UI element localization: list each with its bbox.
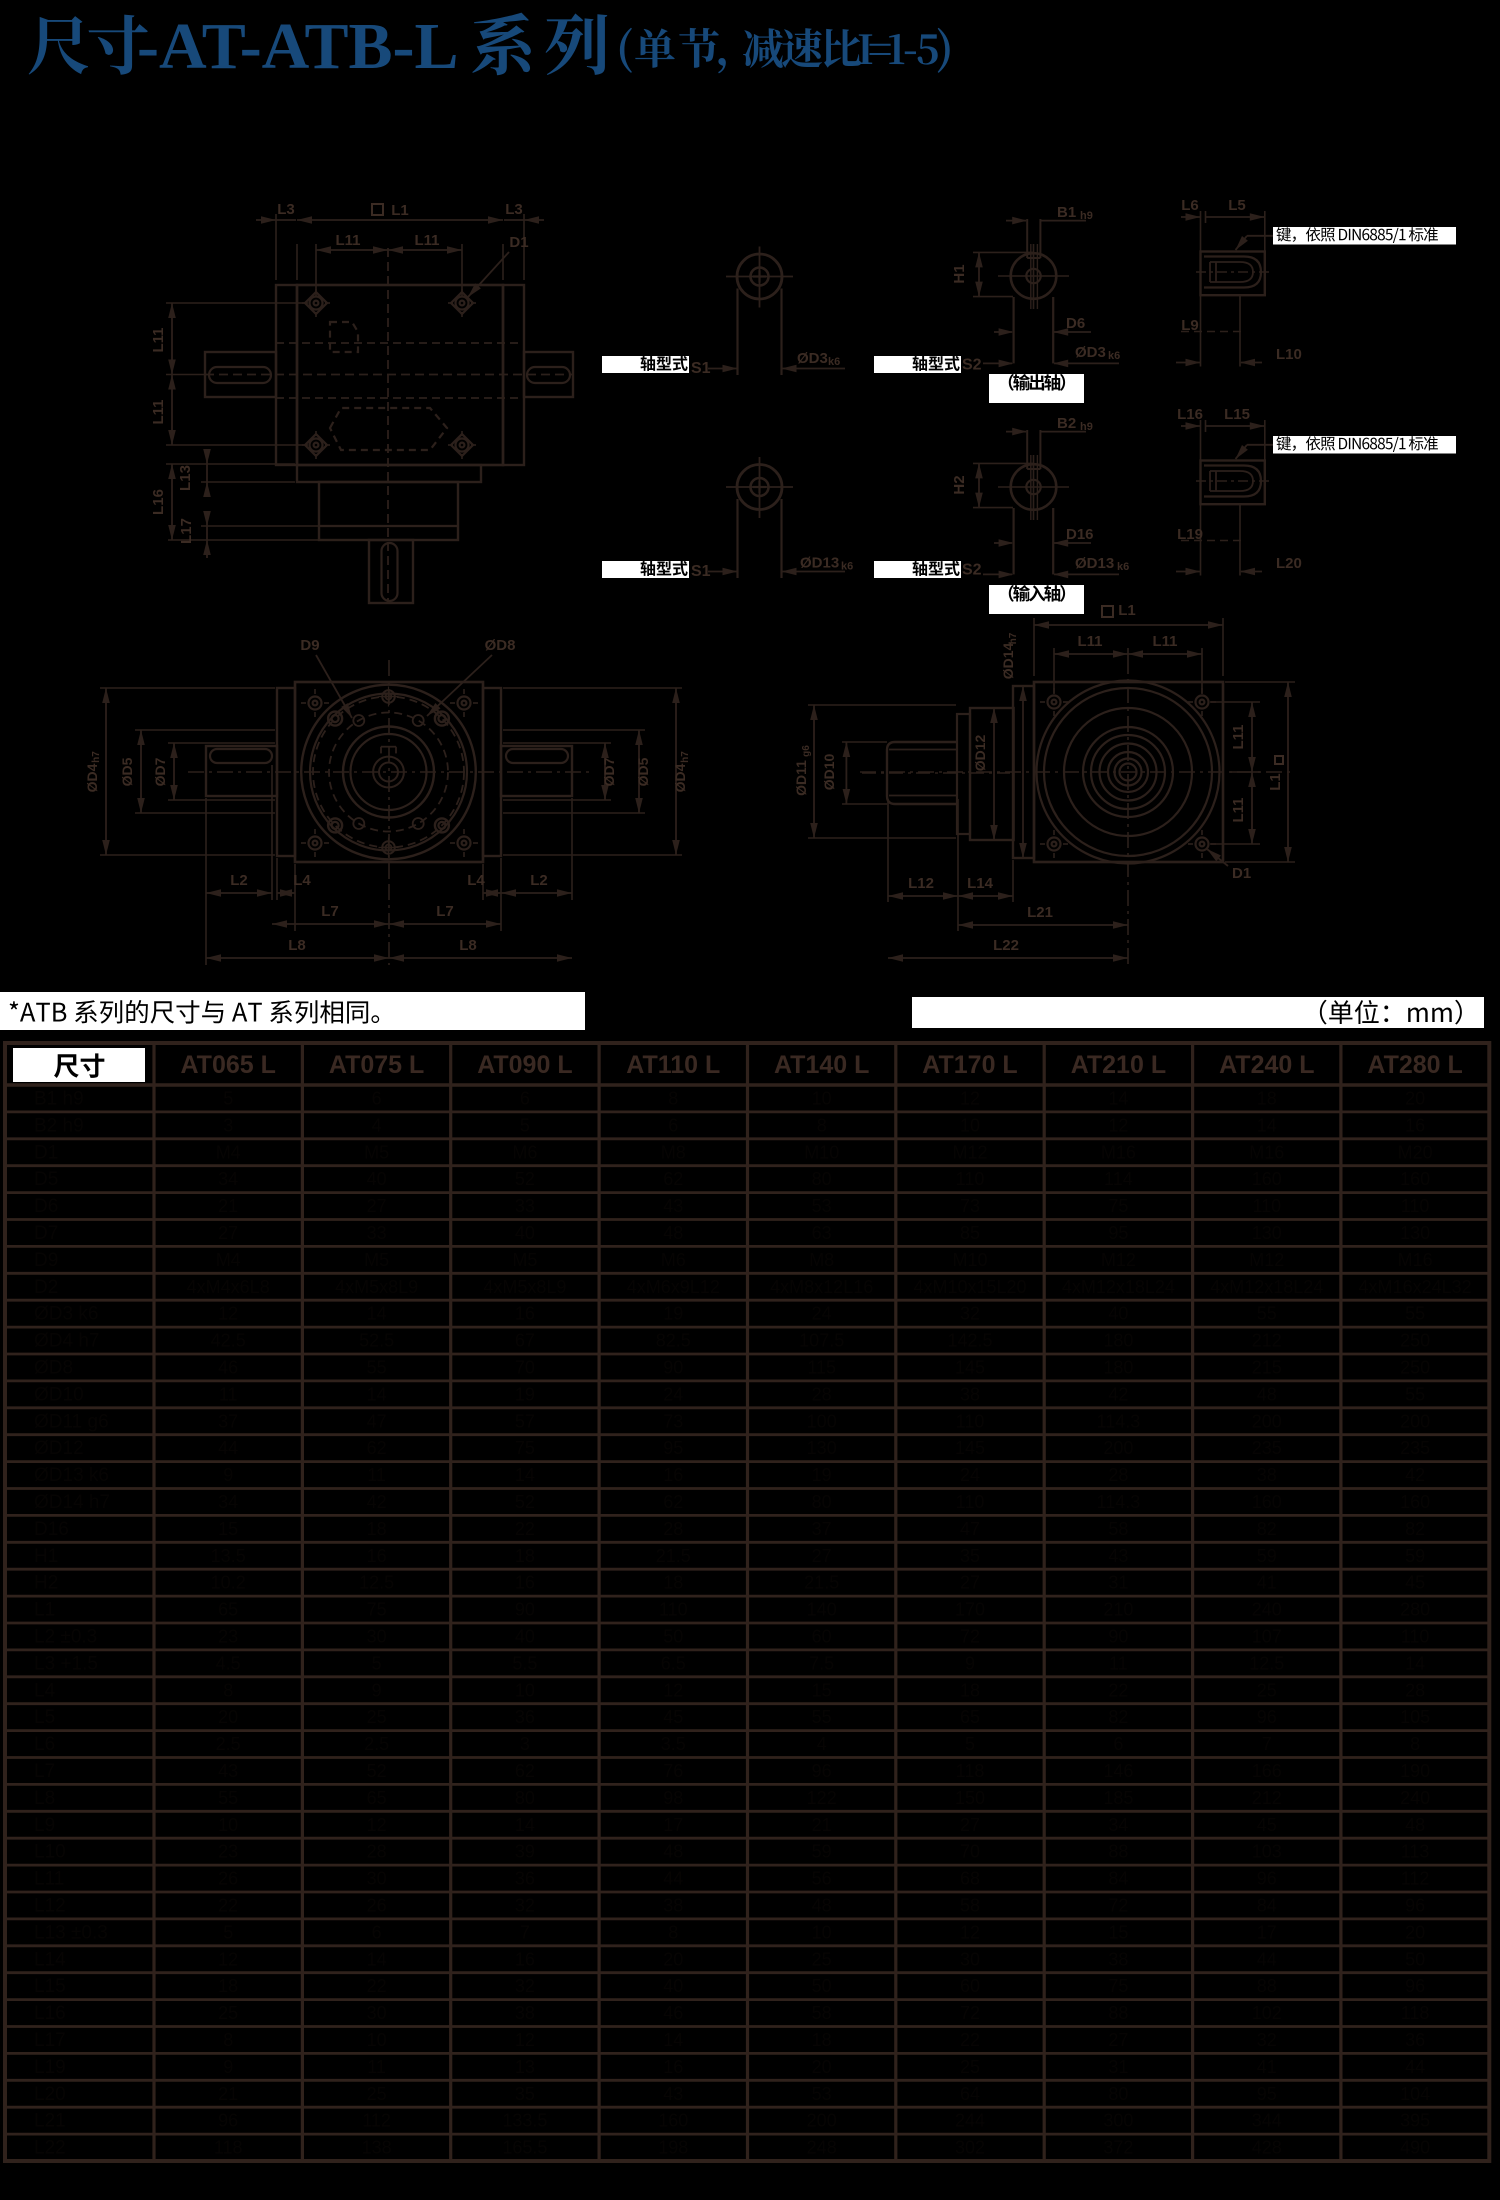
svg-text:38: 38 <box>1257 1465 1277 1485</box>
svg-text:B1: B1 <box>1057 204 1076 221</box>
svg-text:11: 11 <box>367 2057 386 2077</box>
svg-text:17: 17 <box>663 1815 683 1835</box>
svg-text:50: 50 <box>1405 1949 1425 1969</box>
svg-text:L12: L12 <box>908 875 934 892</box>
svg-text:73: 73 <box>663 1411 683 1431</box>
svg-text:L11: L11 <box>1230 797 1247 822</box>
svg-text:12: 12 <box>1108 1115 1128 1135</box>
svg-text:16: 16 <box>515 1949 535 1969</box>
svg-text:75: 75 <box>1108 1196 1128 1216</box>
svg-text:52: 52 <box>367 1761 387 1781</box>
svg-text:S1: S1 <box>691 563 711 580</box>
svg-text:31: 31 <box>1108 2057 1128 2077</box>
svg-text:21: 21 <box>812 1815 832 1835</box>
svg-text:ØD10: ØD10 <box>34 1384 84 1405</box>
svg-text:302: 302 <box>955 2138 985 2158</box>
svg-text:19: 19 <box>663 1304 683 1324</box>
svg-text:52: 52 <box>515 1492 535 1512</box>
svg-text:L9: L9 <box>1181 317 1199 334</box>
svg-text:B2: B2 <box>1057 415 1076 432</box>
svg-text:3: 3 <box>520 1734 530 1754</box>
svg-text:M4: M4 <box>216 1142 241 1162</box>
svg-text:L16: L16 <box>1177 406 1203 423</box>
svg-text:96: 96 <box>812 1761 832 1781</box>
svg-text:160: 160 <box>1400 1492 1430 1512</box>
svg-text:41: 41 <box>1257 2057 1277 2077</box>
svg-text:84: 84 <box>1257 1896 1277 1916</box>
svg-text:6: 6 <box>520 1089 530 1109</box>
svg-text:62: 62 <box>515 1761 535 1781</box>
svg-text:40: 40 <box>515 1627 535 1647</box>
svg-text:42: 42 <box>1108 1384 1128 1404</box>
svg-text:23: 23 <box>218 1842 238 1862</box>
svg-text:9: 9 <box>223 1465 233 1485</box>
svg-text:D1: D1 <box>1232 865 1251 882</box>
svg-text:68: 68 <box>960 1869 980 1889</box>
svg-text:L20: L20 <box>34 2084 66 2105</box>
svg-text:8: 8 <box>223 1680 233 1700</box>
svg-text:AT280 L: AT280 L <box>1367 1051 1462 1079</box>
svg-text:200: 200 <box>807 2111 837 2131</box>
svg-text:6: 6 <box>1113 1734 1123 1754</box>
svg-text:H2: H2 <box>34 1573 58 1594</box>
svg-text:235: 235 <box>1400 1438 1430 1458</box>
svg-text:D6: D6 <box>1066 315 1085 332</box>
svg-text:41: 41 <box>1257 1573 1277 1593</box>
svg-text:D6: D6 <box>34 1196 58 1217</box>
svg-text:L12: L12 <box>34 1896 66 1917</box>
svg-text:B2 h9: B2 h9 <box>34 1115 84 1136</box>
svg-text:18: 18 <box>367 1519 387 1539</box>
svg-text:L11: L11 <box>1230 724 1247 749</box>
svg-text:115: 115 <box>807 1358 836 1378</box>
svg-text:47: 47 <box>960 1519 980 1539</box>
svg-text:32: 32 <box>515 1896 535 1916</box>
svg-text:L13 ±0.3: L13 ±0.3 <box>34 1922 108 1943</box>
svg-text:80: 80 <box>812 1169 832 1189</box>
svg-text:110: 110 <box>956 1169 985 1189</box>
svg-text:146: 146 <box>1103 1761 1133 1781</box>
svg-text:13.5: 13.5 <box>211 1546 246 1566</box>
svg-text:AT140 L: AT140 L <box>774 1051 869 1079</box>
svg-text:12: 12 <box>663 1680 683 1700</box>
svg-text:42.5: 42.5 <box>211 1331 246 1351</box>
svg-text:40: 40 <box>1108 1304 1128 1324</box>
svg-text:h9: h9 <box>1080 421 1093 433</box>
svg-text:133.5: 133.5 <box>502 2111 547 2131</box>
svg-text:S2: S2 <box>962 562 982 579</box>
svg-text:5: 5 <box>965 1734 975 1754</box>
svg-text:14: 14 <box>1108 1089 1128 1109</box>
svg-text:35: 35 <box>960 1546 980 1566</box>
svg-text:76: 76 <box>663 1761 683 1781</box>
svg-text:D16: D16 <box>1066 526 1094 543</box>
svg-text:h7: h7 <box>91 751 102 763</box>
svg-text:L15: L15 <box>34 1976 66 1997</box>
svg-text:30: 30 <box>367 1869 387 1889</box>
svg-text:198: 198 <box>658 2138 688 2158</box>
svg-text:D7: D7 <box>34 1223 58 1244</box>
svg-text:38: 38 <box>960 1384 980 1404</box>
svg-text:250: 250 <box>1400 1358 1430 1378</box>
svg-text:36: 36 <box>1405 2030 1425 2050</box>
svg-text:16: 16 <box>663 2057 683 2077</box>
svg-text:130: 130 <box>1252 1223 1282 1243</box>
svg-text:107.5: 107.5 <box>799 1331 844 1351</box>
svg-text:372: 372 <box>1103 2138 1133 2158</box>
svg-text:58: 58 <box>812 2003 832 2023</box>
svg-text:55: 55 <box>1257 1304 1277 1324</box>
svg-text:L16: L16 <box>34 2003 66 2024</box>
svg-text:110: 110 <box>956 1411 985 1431</box>
svg-text:ØD3: ØD3 <box>797 350 828 367</box>
svg-text:L15: L15 <box>1224 406 1250 423</box>
svg-text:240: 240 <box>1400 1788 1430 1808</box>
svg-text:ØD12: ØD12 <box>972 735 988 772</box>
svg-text:60: 60 <box>960 1976 980 1996</box>
svg-text:75: 75 <box>515 1438 535 1458</box>
svg-text:L7: L7 <box>34 1761 55 1782</box>
svg-text:AT170 L: AT170 L <box>922 1051 1017 1079</box>
svg-text:26: 26 <box>218 1869 238 1889</box>
svg-text:g6: g6 <box>801 745 812 757</box>
svg-text:53: 53 <box>812 1196 832 1216</box>
svg-text:L7: L7 <box>436 903 454 920</box>
svg-text:L3: L3 <box>277 201 295 218</box>
svg-text:110: 110 <box>1401 1627 1430 1647</box>
svg-text:138: 138 <box>362 2138 392 2158</box>
svg-text:72: 72 <box>1108 1896 1128 1916</box>
svg-text:AT210 L: AT210 L <box>1071 1051 1166 1079</box>
svg-text:60: 60 <box>812 1627 832 1647</box>
svg-text:96: 96 <box>1257 1707 1277 1727</box>
svg-text:122: 122 <box>807 1788 837 1808</box>
svg-text:ØD7: ØD7 <box>152 757 168 786</box>
svg-text:M8: M8 <box>661 1142 686 1162</box>
svg-text:16: 16 <box>663 1465 683 1485</box>
svg-text:36: 36 <box>515 1707 535 1727</box>
svg-text:ØD7: ØD7 <box>601 757 617 786</box>
svg-text:8: 8 <box>817 1115 827 1135</box>
svg-text:10: 10 <box>812 1089 832 1109</box>
svg-text:110: 110 <box>659 1600 688 1620</box>
svg-text:34: 34 <box>1108 1815 1128 1835</box>
svg-text:118: 118 <box>956 1761 985 1781</box>
svg-text:15: 15 <box>1108 1922 1128 1942</box>
svg-text:S2: S2 <box>962 357 982 374</box>
svg-text:AT075 L: AT075 L <box>329 1051 424 1079</box>
svg-text:L11: L11 <box>34 1869 64 1890</box>
svg-text:6.5: 6.5 <box>661 1653 686 1673</box>
svg-text:25: 25 <box>960 2057 980 2077</box>
svg-text:L4: L4 <box>293 872 311 889</box>
svg-text:27: 27 <box>960 1815 980 1835</box>
svg-text:L11: L11 <box>150 327 167 352</box>
svg-text:L21: L21 <box>34 2111 66 2132</box>
svg-text:ØD5: ØD5 <box>635 757 651 786</box>
svg-text:27: 27 <box>1108 2030 1128 2050</box>
svg-text:L1: L1 <box>34 1600 55 1621</box>
svg-text:28: 28 <box>1108 1465 1128 1485</box>
svg-text:102: 102 <box>1252 2003 1282 2023</box>
svg-text:L21: L21 <box>1027 904 1053 921</box>
svg-text:10: 10 <box>218 1815 238 1835</box>
svg-text:M6: M6 <box>661 1250 686 1270</box>
svg-text:45: 45 <box>663 1707 683 1727</box>
svg-text:36: 36 <box>515 1869 535 1889</box>
svg-text:33: 33 <box>515 1196 535 1216</box>
svg-text:46: 46 <box>218 1358 238 1378</box>
svg-text:6: 6 <box>372 1089 382 1109</box>
svg-text:4xM6x9L12: 4xM6x9L12 <box>627 1277 720 1297</box>
svg-text:9: 9 <box>372 1680 382 1700</box>
svg-text:40: 40 <box>663 1976 683 1996</box>
svg-text:33: 33 <box>367 1223 387 1243</box>
svg-text:80: 80 <box>812 1492 832 1512</box>
svg-text:25: 25 <box>1257 1680 1277 1700</box>
svg-text:4xM12x18L24: 4xM12x18L24 <box>1210 1277 1323 1297</box>
svg-text:50: 50 <box>812 1976 832 1996</box>
svg-text:S1: S1 <box>691 360 711 377</box>
svg-text:L3 +1.5: L3 +1.5 <box>34 1653 98 1674</box>
svg-text:25: 25 <box>367 2084 387 2104</box>
svg-text:k6: k6 <box>841 561 853 573</box>
svg-text:14: 14 <box>515 1465 535 1485</box>
svg-text:10: 10 <box>367 2030 387 2050</box>
svg-text:80: 80 <box>515 1788 535 1808</box>
svg-text:22: 22 <box>367 1976 387 1996</box>
svg-text:L9: L9 <box>34 1815 55 1836</box>
svg-text:14: 14 <box>1257 1115 1277 1135</box>
svg-text:215: 215 <box>1252 1358 1282 1378</box>
svg-text:98: 98 <box>663 1788 683 1808</box>
svg-text:ØD14 h7: ØD14 h7 <box>34 1492 110 1513</box>
svg-text:200: 200 <box>1252 1411 1282 1431</box>
svg-text:114.3: 114.3 <box>1097 1411 1141 1431</box>
svg-text:14: 14 <box>1405 1653 1425 1673</box>
svg-text:4xM10x15L20: 4xM10x15L20 <box>913 1277 1026 1297</box>
svg-text:ØD4: ØD4 <box>84 763 100 792</box>
svg-text:M5: M5 <box>512 1250 537 1270</box>
svg-text:25: 25 <box>812 1949 832 1969</box>
svg-text:58: 58 <box>1108 1519 1128 1539</box>
svg-text:84: 84 <box>1108 1869 1128 1889</box>
svg-text:16: 16 <box>515 1304 535 1324</box>
svg-text:130: 130 <box>807 1438 837 1458</box>
svg-text:25: 25 <box>218 2003 238 2023</box>
svg-text:L11: L11 <box>1077 633 1102 650</box>
svg-text:38: 38 <box>663 1896 683 1916</box>
svg-text:L13: L13 <box>177 465 194 491</box>
svg-text:90: 90 <box>1108 1627 1128 1647</box>
svg-text:82: 82 <box>1108 1707 1128 1727</box>
svg-text:4: 4 <box>372 1115 382 1135</box>
svg-text:118: 118 <box>214 2138 243 2158</box>
svg-text:104: 104 <box>1400 2084 1430 2104</box>
svg-text:H2: H2 <box>951 475 968 494</box>
svg-text:59: 59 <box>1405 1546 1425 1566</box>
svg-text:L8: L8 <box>34 1788 55 1809</box>
svg-text:57: 57 <box>515 1411 535 1431</box>
svg-text:28: 28 <box>1405 1680 1425 1700</box>
svg-text:48: 48 <box>663 1223 683 1243</box>
svg-text:130: 130 <box>1400 1223 1430 1243</box>
svg-text:20: 20 <box>663 1949 683 1969</box>
svg-text:L11: L11 <box>335 232 360 249</box>
svg-text:185: 185 <box>1103 1788 1133 1808</box>
svg-text:k6: k6 <box>1108 350 1120 362</box>
svg-text:18: 18 <box>663 1573 683 1593</box>
svg-text:2.5: 2.5 <box>216 1734 241 1754</box>
svg-text:L5: L5 <box>34 1707 55 1728</box>
svg-text:ØD13 k6: ØD13 k6 <box>34 1465 109 1486</box>
svg-text:190: 190 <box>1400 1761 1430 1781</box>
svg-text:95: 95 <box>1257 2084 1277 2104</box>
svg-text:59: 59 <box>1257 1546 1277 1566</box>
svg-text:M5: M5 <box>364 1142 389 1162</box>
svg-text:D9: D9 <box>300 637 319 654</box>
svg-text:L2 ±0.3: L2 ±0.3 <box>34 1627 97 1648</box>
svg-text:75: 75 <box>1108 1976 1128 1996</box>
svg-text:2.5: 2.5 <box>364 1734 389 1754</box>
svg-text:10: 10 <box>812 1922 832 1942</box>
svg-text:88: 88 <box>1108 1842 1128 1862</box>
svg-text:32: 32 <box>515 1976 535 1996</box>
svg-text:ØD8: ØD8 <box>34 1358 73 1379</box>
svg-text:30: 30 <box>367 1627 387 1647</box>
svg-text:180: 180 <box>1103 1358 1133 1378</box>
svg-text:40: 40 <box>515 1223 535 1243</box>
svg-text:L22: L22 <box>993 937 1019 954</box>
svg-text:55: 55 <box>812 1707 832 1727</box>
svg-text:M12: M12 <box>1101 1250 1136 1270</box>
svg-text:44: 44 <box>1257 1949 1277 1969</box>
svg-text:50: 50 <box>663 1627 683 1647</box>
svg-text:18: 18 <box>515 1546 535 1566</box>
svg-text:23: 23 <box>218 1627 238 1647</box>
svg-text:17: 17 <box>1257 1922 1277 1942</box>
svg-text:ØD11 g6: ØD11 g6 <box>34 1411 109 1432</box>
svg-text:D9: D9 <box>34 1250 58 1271</box>
svg-text:28: 28 <box>367 1842 387 1862</box>
svg-text:D5: D5 <box>34 1169 58 1190</box>
svg-text:42: 42 <box>367 1492 387 1512</box>
svg-text:D2: D2 <box>34 1277 58 1298</box>
svg-text:12: 12 <box>367 1815 387 1835</box>
svg-text:14: 14 <box>515 1815 535 1835</box>
svg-text:235: 235 <box>1252 1438 1282 1458</box>
svg-text:110: 110 <box>1401 1196 1430 1216</box>
svg-text:300: 300 <box>1103 2111 1133 2131</box>
svg-text:112: 112 <box>1401 1869 1430 1889</box>
svg-text:48: 48 <box>1257 1384 1277 1404</box>
svg-text:L8: L8 <box>288 937 306 954</box>
svg-text:L10: L10 <box>34 1842 66 1863</box>
svg-text:145: 145 <box>955 1358 985 1378</box>
svg-text:5: 5 <box>223 1922 233 1942</box>
svg-text:27: 27 <box>812 1546 832 1566</box>
svg-text:82.5: 82.5 <box>656 1331 691 1351</box>
svg-text:64: 64 <box>960 2084 980 2104</box>
svg-text:20: 20 <box>218 1707 238 1727</box>
svg-text:14: 14 <box>367 1384 387 1404</box>
svg-text:L11: L11 <box>1152 633 1177 650</box>
svg-text:21.5: 21.5 <box>804 1573 839 1593</box>
svg-text:160: 160 <box>1252 1492 1282 1512</box>
svg-text:M5: M5 <box>364 1250 389 1270</box>
svg-text:20: 20 <box>1405 1922 1425 1942</box>
svg-text:15: 15 <box>812 1680 832 1700</box>
svg-text:12.5: 12.5 <box>359 1573 394 1593</box>
svg-text:10.2: 10.2 <box>211 1573 246 1593</box>
svg-text:18: 18 <box>218 1976 238 1996</box>
svg-text:7: 7 <box>520 1922 530 1942</box>
svg-text:13: 13 <box>515 2057 535 2077</box>
svg-text:48: 48 <box>812 1896 832 1916</box>
svg-text:M10: M10 <box>952 1250 987 1270</box>
svg-text:88: 88 <box>1108 2003 1128 2023</box>
svg-text:46: 46 <box>663 2003 683 2023</box>
svg-text:9: 9 <box>965 1653 975 1673</box>
svg-text:5: 5 <box>372 1653 382 1673</box>
svg-text:28: 28 <box>812 1384 832 1404</box>
svg-text:96: 96 <box>1257 1869 1277 1889</box>
svg-text:L19: L19 <box>34 2057 66 2078</box>
svg-text:k6: k6 <box>828 356 840 368</box>
svg-text:11: 11 <box>1109 1653 1128 1673</box>
svg-text:52: 52 <box>515 1169 535 1189</box>
svg-text:140: 140 <box>807 1600 837 1620</box>
svg-text:59: 59 <box>812 1842 832 1862</box>
svg-text:55: 55 <box>218 1788 238 1808</box>
svg-text:30: 30 <box>367 2003 387 2023</box>
svg-text:38: 38 <box>515 2003 535 2023</box>
svg-text:38: 38 <box>1108 1949 1128 1969</box>
svg-text:10: 10 <box>960 1115 980 1135</box>
svg-text:L10: L10 <box>1276 346 1302 363</box>
svg-text:20: 20 <box>812 2057 832 2077</box>
svg-text:L1: L1 <box>391 202 409 219</box>
svg-text:114.3: 114.3 <box>1097 1492 1141 1512</box>
svg-text:h7: h7 <box>680 751 691 763</box>
svg-text:212: 212 <box>1252 1788 1282 1808</box>
svg-text:11: 11 <box>219 1384 238 1404</box>
svg-text:ØD5: ØD5 <box>119 757 135 786</box>
svg-text:15: 15 <box>218 1519 238 1539</box>
svg-text:3.5: 3.5 <box>661 1734 686 1754</box>
svg-text:L2: L2 <box>530 872 548 889</box>
svg-text:L6: L6 <box>1181 197 1199 214</box>
svg-text:165.5: 165.5 <box>502 2138 547 2158</box>
svg-text:65: 65 <box>367 1788 387 1808</box>
svg-text:L11: L11 <box>150 399 167 424</box>
svg-text:ØD3 k6: ØD3 k6 <box>34 1304 98 1325</box>
svg-text:6: 6 <box>668 1115 678 1135</box>
svg-text:L17: L17 <box>34 2030 66 2051</box>
svg-text:L4: L4 <box>467 872 485 889</box>
svg-text:D1: D1 <box>509 234 528 251</box>
svg-text:M20: M20 <box>1398 1142 1433 1162</box>
svg-text:8: 8 <box>223 2030 233 2050</box>
svg-text:ØD8: ØD8 <box>485 637 516 654</box>
svg-text:52.5: 52.5 <box>359 1331 394 1351</box>
svg-text:ØD12: ØD12 <box>34 1438 84 1459</box>
svg-text:26: 26 <box>367 1896 387 1916</box>
svg-text:55: 55 <box>367 1358 387 1378</box>
svg-text:4xM5x8L9: 4xM5x8L9 <box>483 1277 566 1297</box>
svg-text:30: 30 <box>960 1949 980 1969</box>
svg-text:248: 248 <box>807 2138 837 2158</box>
